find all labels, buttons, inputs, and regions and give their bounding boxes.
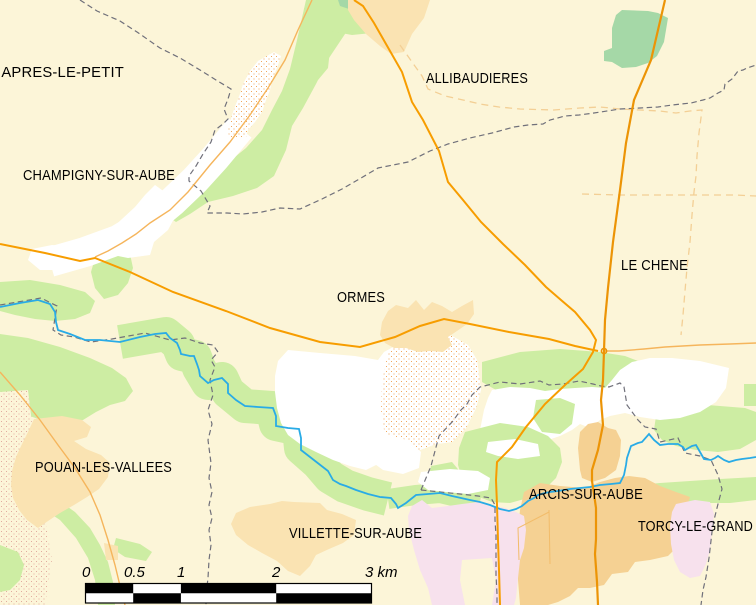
- svg-text:1: 1: [177, 564, 185, 581]
- svg-text:2: 2: [271, 564, 281, 581]
- svg-text:ORMES: ORMES: [337, 289, 385, 306]
- svg-text:CHAMPIGNY-SUR-AUBE: CHAMPIGNY-SUR-AUBE: [23, 167, 175, 184]
- svg-text:0: 0: [82, 564, 91, 581]
- svg-text:TORCY-LE-GRAND: TORCY-LE-GRAND: [638, 518, 753, 535]
- svg-text:0.5: 0.5: [124, 564, 146, 581]
- svg-text:VIAPRES-LE-PETIT: VIAPRES-LE-PETIT: [0, 64, 124, 81]
- svg-text:ALLIBAUDIERES: ALLIBAUDIERES: [426, 70, 528, 87]
- svg-text:VILLETTE-SUR-AUBE: VILLETTE-SUR-AUBE: [289, 525, 422, 542]
- svg-text:3 km: 3 km: [365, 564, 398, 581]
- svg-text:ARCIS-SUR-AUBE: ARCIS-SUR-AUBE: [529, 486, 643, 503]
- svg-text:POUAN-LES-VALLEES: POUAN-LES-VALLEES: [35, 459, 172, 476]
- svg-text:LE CHENE: LE CHENE: [621, 257, 688, 274]
